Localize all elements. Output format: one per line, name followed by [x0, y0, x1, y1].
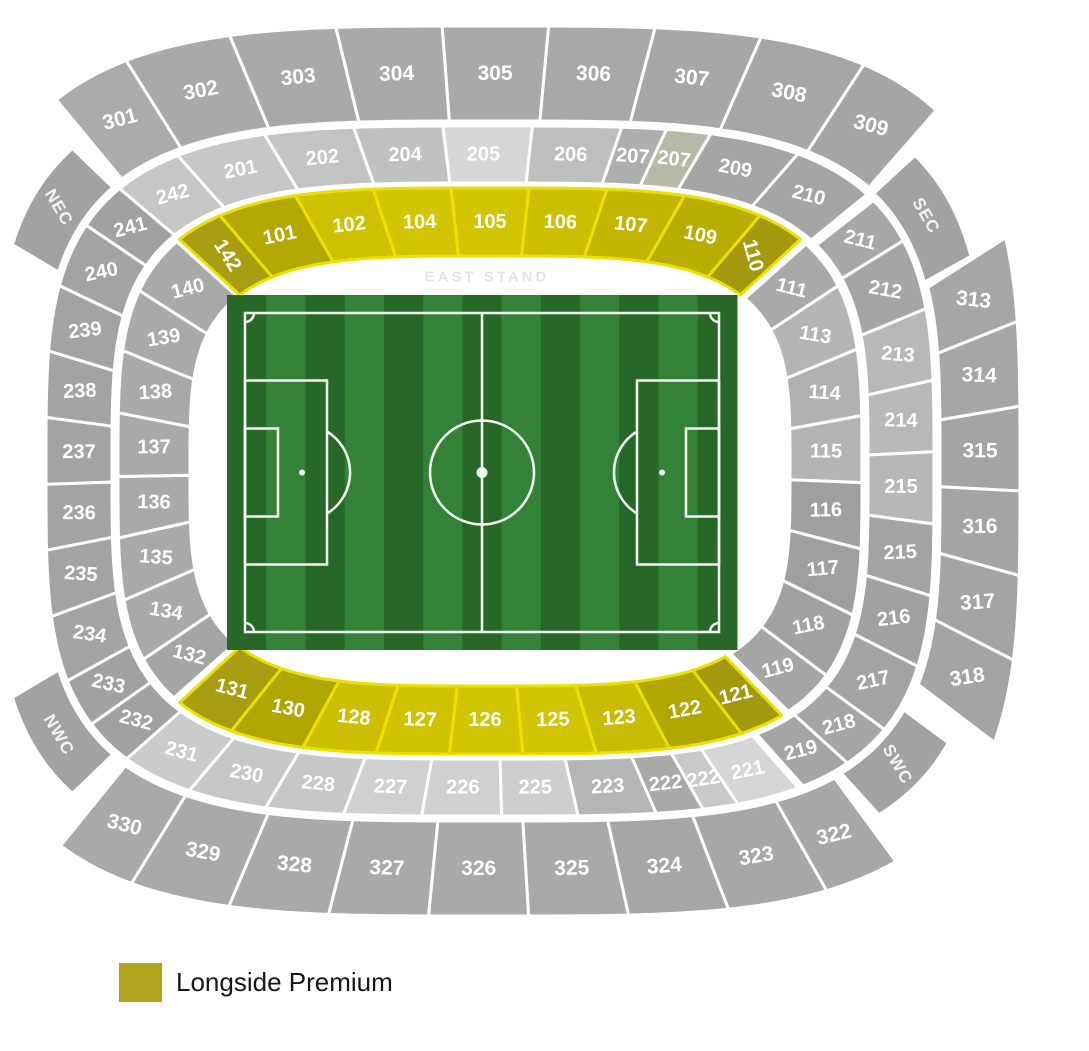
- section-326[interactable]: [429, 821, 529, 916]
- section-105[interactable]: [451, 188, 529, 256]
- section-315[interactable]: [940, 406, 1020, 491]
- pitch-stripe: [698, 295, 738, 650]
- legend-swatch-longside-premium: [119, 963, 162, 1002]
- section-215[interactable]: [868, 452, 934, 524]
- penalty-spot-right: [659, 470, 665, 476]
- legend: Longside Premium: [119, 963, 393, 1002]
- center-spot: [477, 467, 488, 478]
- pitch-stripe: [502, 295, 542, 650]
- legend-label: Longside Premium: [176, 967, 393, 998]
- seat-map-page: NECSECNWCSWC3013023033043053063073083093…: [0, 0, 1089, 1051]
- stadium-map: NECSECNWCSWC3013023033043053063073083093…: [0, 0, 1089, 1051]
- pitch-stripe: [384, 295, 424, 650]
- section-237[interactable]: [46, 417, 112, 484]
- section-305[interactable]: [442, 26, 549, 121]
- pitch: [227, 295, 738, 650]
- section-205[interactable]: [443, 126, 533, 183]
- section-214[interactable]: [867, 380, 934, 455]
- section-236[interactable]: [46, 482, 113, 550]
- pitch-stripe: [306, 295, 346, 650]
- penalty-spot-left: [299, 470, 305, 476]
- east-stand-label: EAST STAND: [425, 269, 550, 286]
- pitch-stripe: [541, 295, 581, 650]
- pitch-stripe: [619, 295, 659, 650]
- pitch-stripe: [227, 295, 267, 650]
- section-115[interactable]: [790, 416, 862, 483]
- section-126[interactable]: [449, 686, 523, 754]
- section-225[interactable]: [500, 759, 578, 816]
- section-226[interactable]: [422, 759, 502, 816]
